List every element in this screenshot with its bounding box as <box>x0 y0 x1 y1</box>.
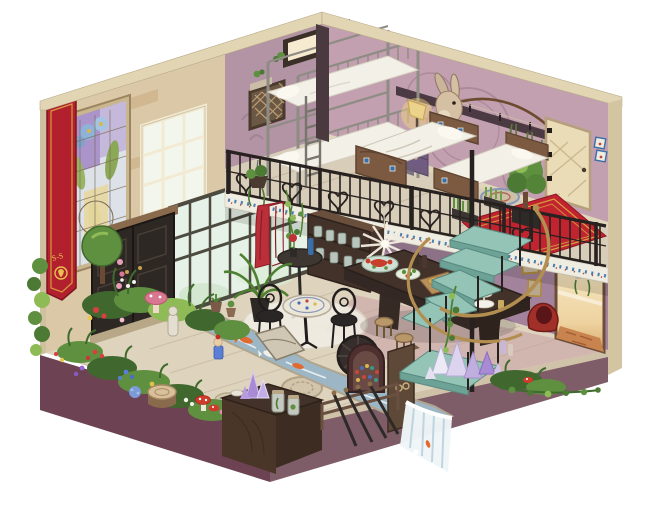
isometric-room-illustration: S-S <box>0 0 658 514</box>
stool <box>375 318 393 339</box>
blue-bottle <box>308 238 314 255</box>
desk-dish <box>231 390 243 396</box>
right-outer-edge <box>608 99 622 375</box>
arch-display-rack <box>348 344 384 392</box>
garden-statue <box>168 307 178 337</box>
lobster-platter <box>362 256 398 272</box>
corner-post <box>316 24 329 142</box>
artwork-stage: S-S <box>0 0 658 514</box>
guild-banner: S-S <box>47 97 76 300</box>
basket-chair <box>528 303 558 331</box>
stair-bottles <box>500 340 506 354</box>
tree-stump <box>148 385 176 408</box>
